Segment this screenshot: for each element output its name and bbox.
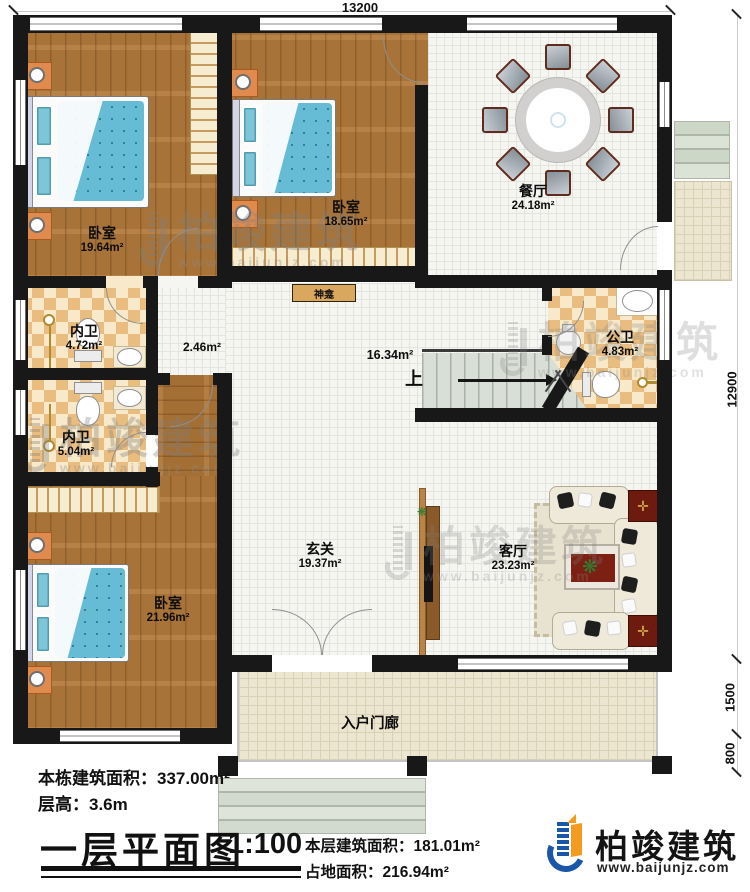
window: [659, 82, 670, 127]
dim-steps-depth: 800: [723, 736, 738, 772]
toilet-tank: [74, 382, 102, 394]
window: [60, 730, 180, 742]
door-gap: [158, 276, 198, 288]
wall-ensuite-right: [146, 288, 158, 368]
room-name: 卧室: [52, 226, 152, 242]
room-area: 5.04m²: [26, 446, 126, 459]
title-underline-thin: [41, 876, 301, 878]
dining-chair: [482, 107, 508, 133]
floor-plan-canvas: ✛ ✛ ❋ ❋ 神龛 柏竣建筑 www.baijunjz.com 柏竣建筑 ww…: [0, 0, 750, 892]
stair-stringer: [422, 349, 550, 352]
nightstand: [24, 212, 52, 240]
porch-pillar: [652, 756, 672, 774]
room-label-bedroom-tm: 卧室 18.65m²: [296, 200, 396, 229]
window: [15, 390, 26, 435]
toilet: [592, 371, 620, 398]
room-name: 卧室: [296, 200, 396, 216]
side-table: ✛: [628, 615, 658, 647]
bed-bedroom-b: [25, 564, 129, 662]
room-name: 内卫: [26, 430, 126, 446]
room-area: 21.96m²: [118, 612, 218, 625]
window: [467, 17, 617, 31]
corridor-floor: [146, 286, 230, 376]
brand-url: www.baijunjz.com: [597, 860, 747, 875]
window: [30, 17, 182, 31]
coffee-table: ❋: [564, 544, 620, 590]
door-gap: [272, 655, 372, 672]
wardrobe-bedroom-b: [26, 487, 160, 513]
room-label-porch: 入户门廊: [310, 716, 430, 732]
sofa-bottom: [552, 612, 630, 650]
room-label-foyer: 玄关 19.37m²: [270, 542, 370, 571]
room-name: 入户门廊: [310, 716, 430, 732]
room-area: 19.37m²: [270, 558, 370, 571]
dim-tick: [665, 5, 676, 16]
floor-height-note: 层高：3.6m: [38, 790, 368, 815]
nightstand: [230, 200, 258, 228]
wardrobe-bedroom-tm: [232, 247, 416, 267]
door-gap: [106, 276, 143, 288]
dining-chair: [545, 44, 571, 70]
room-area: 18.65m²: [296, 216, 396, 229]
dining-table-center: [550, 112, 566, 128]
room-area: 23.23m²: [463, 560, 563, 573]
stairs-up-label: 上: [400, 369, 428, 389]
nightstand: [230, 69, 258, 97]
dim-depth-main: 12900: [725, 360, 740, 420]
wall-ensuite-divider: [13, 368, 158, 380]
building-area-note: 本栋建筑面积：337.00m²: [38, 764, 368, 789]
wall-bedroom-tm-right: [415, 85, 428, 281]
room-label-dining: 餐厅 24.18m²: [483, 184, 583, 213]
sofa-right: [614, 518, 658, 620]
side-landing-floor: [674, 181, 732, 281]
window: [15, 80, 26, 165]
door-gap: [657, 222, 672, 270]
wall-bedrooms-divider: [217, 15, 232, 288]
nightstand: [24, 62, 52, 90]
wall-stair-bottom: [415, 408, 660, 422]
porch-floor: [237, 672, 658, 762]
stair-direction-line: [458, 379, 546, 382]
wall-ensuite2-right-a: [146, 380, 158, 435]
room-name: 玄关: [270, 542, 370, 558]
floor-area-note: 本层建筑面积：181.01m²: [305, 834, 575, 856]
room-label-public-bath: 公卫 4.83m²: [570, 330, 670, 359]
wall-bedroom-b-right: [217, 375, 232, 744]
room-area: 4.72m²: [34, 340, 134, 353]
window: [260, 17, 382, 31]
bed-bedroom-tm: [232, 99, 336, 197]
room-name: 客厅: [463, 544, 563, 560]
room-area: 24.18m²: [483, 200, 583, 213]
toilet: [76, 396, 100, 426]
room-name: 餐厅: [483, 184, 583, 200]
title-underline-thick: [41, 866, 301, 871]
window: [458, 658, 628, 670]
wardrobe-bedroom-tl: [190, 30, 218, 175]
porch-pillar: [407, 756, 427, 776]
room-name: 卧室: [118, 596, 218, 612]
window: [15, 300, 26, 360]
side-table: ✛: [628, 490, 658, 522]
dim-porch-depth: 1500: [723, 676, 738, 720]
wall-ensuite2-bottom: [13, 472, 160, 486]
dining-chair: [608, 107, 634, 133]
room-area: 19.64m²: [52, 242, 152, 255]
dim-tick: [8, 5, 19, 16]
wall-dining-bottom: [415, 275, 663, 288]
room-label-ensuite1: 内卫 4.72m²: [34, 324, 134, 353]
room-label-living: 客厅 23.23m²: [463, 544, 563, 573]
shrine-shelf: 神龛: [292, 284, 356, 302]
brand-logo-icon: [545, 818, 589, 876]
plant-icon: ❋: [417, 505, 427, 519]
bed-bedroom-tl: [25, 96, 149, 208]
tv: [424, 546, 433, 602]
room-label-bedroom-b: 卧室 21.96m²: [118, 596, 218, 625]
sink: [622, 290, 653, 312]
nightstand: [24, 666, 52, 694]
wall-corridor-top-b: [213, 373, 232, 385]
room-label-bedroom-tl: 卧室 19.64m²: [52, 226, 152, 255]
wall-public-bath-left-a: [542, 288, 552, 301]
room-area: 4.83m²: [570, 346, 670, 359]
nightstand: [24, 532, 52, 560]
dim-width-top: 13200: [320, 0, 400, 15]
wall-shrine: [230, 266, 428, 282]
side-steps: [674, 121, 732, 181]
hall-area-label: 16.34m²: [345, 348, 435, 362]
shrine-label: 神龛: [314, 290, 334, 301]
room-label-ensuite2: 内卫 5.04m²: [26, 430, 126, 459]
window: [15, 570, 26, 650]
room-name: 内卫: [34, 324, 134, 340]
brand-logo: 柏竣建筑 www.baijunjz.com: [545, 816, 745, 880]
toilet-tank: [582, 372, 591, 397]
corridor-area-label: 2.46m²: [162, 341, 242, 354]
room-name: 公卫: [570, 330, 670, 346]
sink: [117, 389, 142, 407]
wall-public-bath-left-b: [542, 335, 552, 355]
plant-icon: ❋: [582, 554, 598, 582]
wall-corridor-top-a: [146, 373, 170, 385]
footprint-note: 占地面积：216.94m²: [305, 860, 555, 882]
